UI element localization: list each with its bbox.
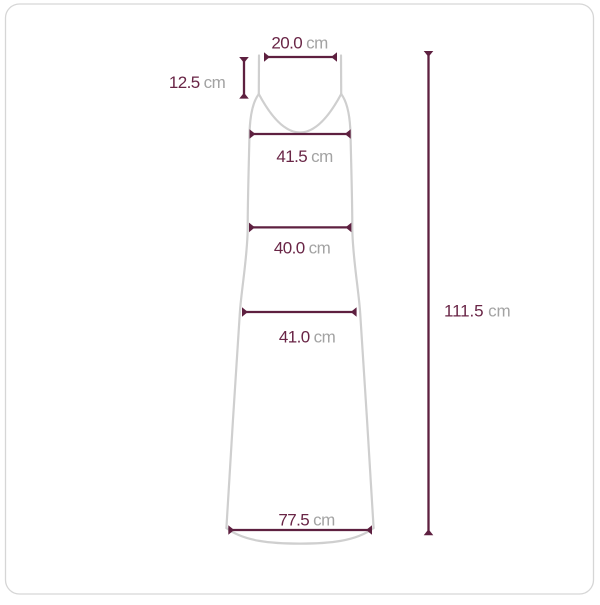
svg-text:41.0 cm: 41.0 cm [279,328,336,347]
svg-text:41.5 cm: 41.5 cm [276,147,333,166]
svg-text:111.5 cm: 111.5 cm [444,302,511,321]
svg-text:40.0 cm: 40.0 cm [274,238,331,257]
svg-text:77.5 cm: 77.5 cm [278,511,335,530]
svg-text:20.0 cm: 20.0 cm [271,33,328,52]
svg-text:12.5 cm: 12.5 cm [169,73,226,92]
